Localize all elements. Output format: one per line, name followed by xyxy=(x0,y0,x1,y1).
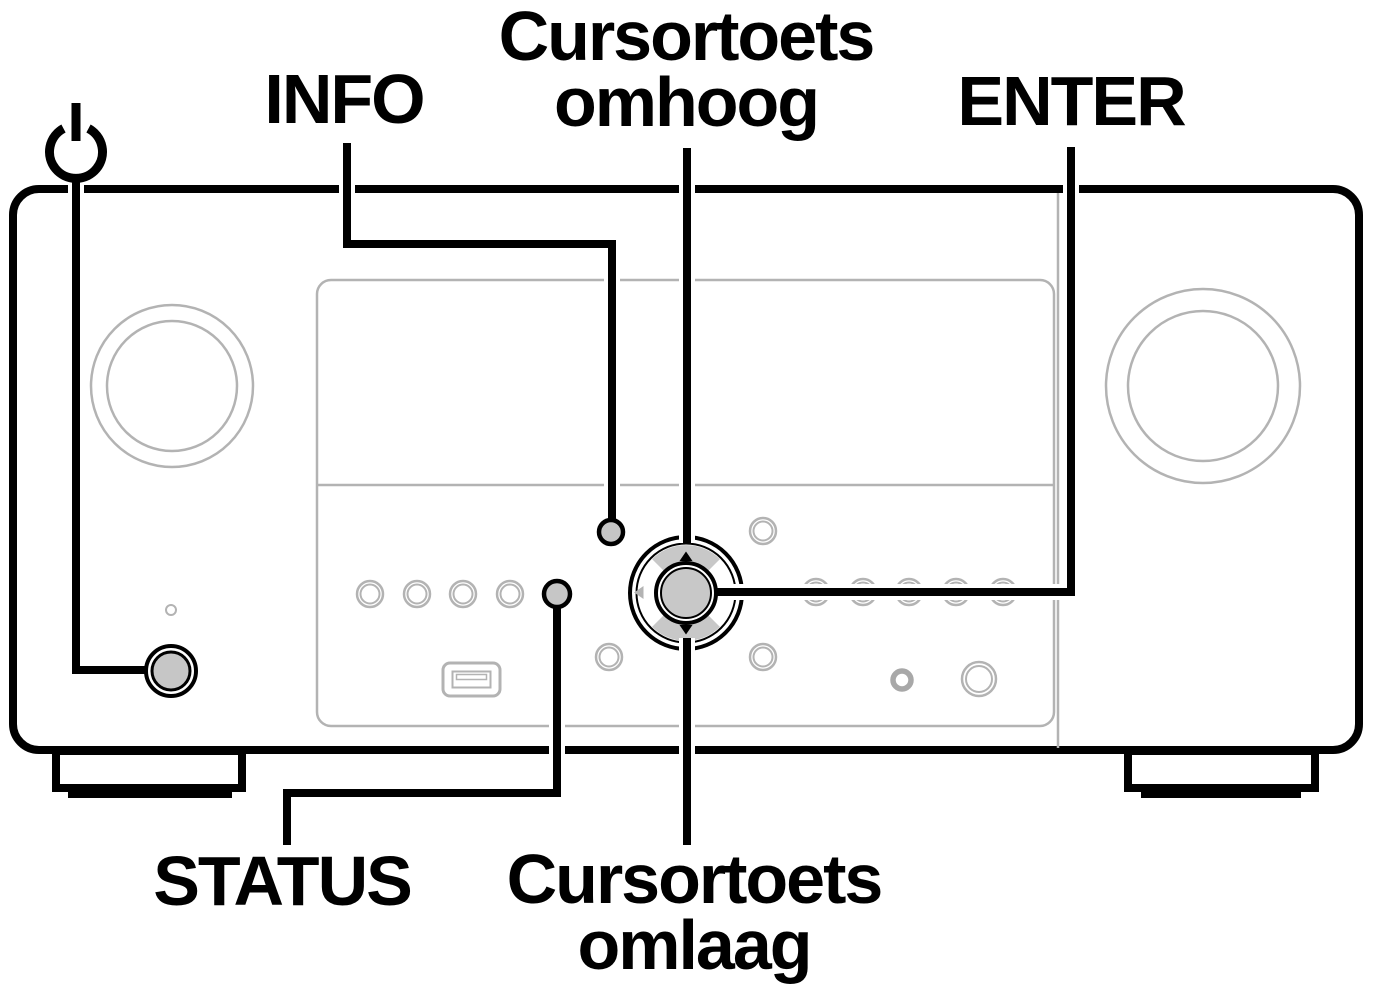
power-button xyxy=(146,646,196,696)
cursor-up-label: Cursortoets omhoog xyxy=(499,3,874,135)
receiver-drawing xyxy=(0,0,1373,984)
enter-label: ENTER xyxy=(957,66,1184,136)
right-foot xyxy=(1128,751,1315,798)
cursor-down-label-line2: omlaag xyxy=(577,906,810,984)
status-button xyxy=(544,581,570,607)
cursor-up-label-line2: omhoog xyxy=(554,63,818,141)
info-label: INFO xyxy=(264,64,423,134)
cursor-down-label: Cursortoets omlaag xyxy=(507,846,882,978)
front-panel-diagram: INFO Cursortoets omhoog ENTER STATUS Cur… xyxy=(0,0,1373,984)
enter-button xyxy=(656,563,716,623)
status-label: STATUS xyxy=(153,846,411,916)
left-foot xyxy=(56,751,242,798)
power-icon xyxy=(50,103,103,178)
info-button xyxy=(599,520,623,544)
